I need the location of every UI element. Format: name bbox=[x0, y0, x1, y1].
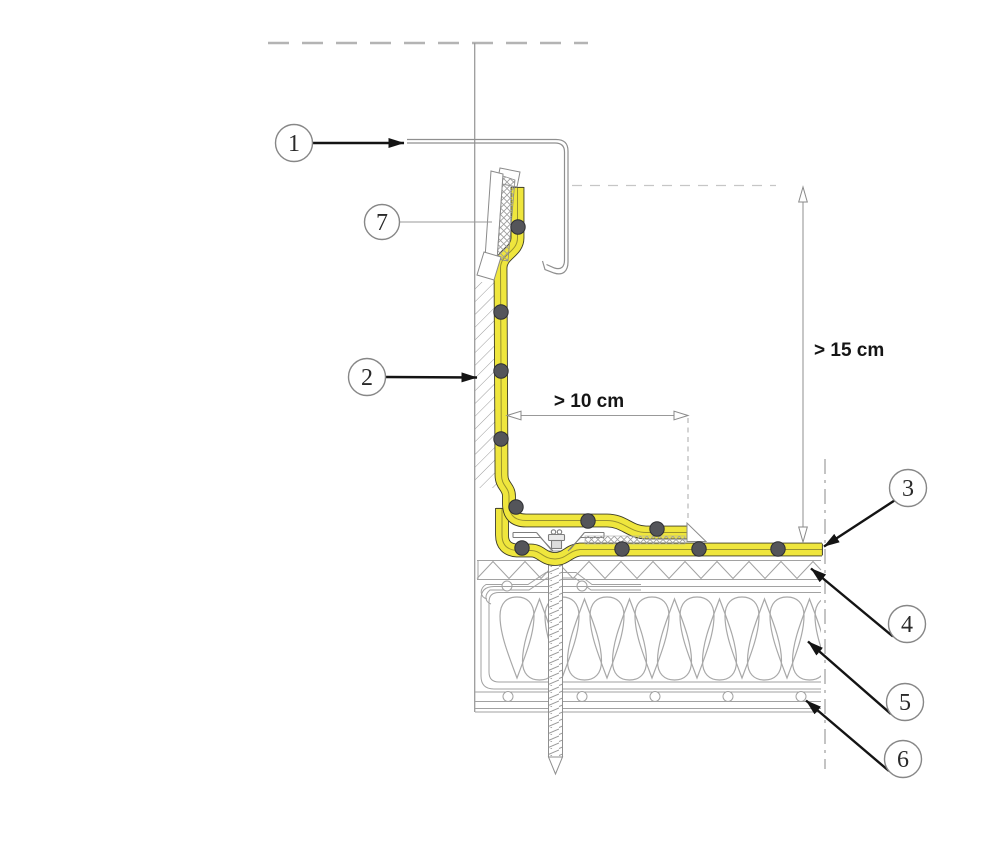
screw-tip bbox=[549, 757, 563, 774]
screw-head bbox=[549, 535, 565, 541]
deck-perforation bbox=[796, 692, 806, 702]
deck-perforation bbox=[503, 692, 513, 702]
callout-3-leader bbox=[824, 501, 895, 547]
dimension-arrow-right bbox=[674, 411, 688, 420]
callout-4-number: 4 bbox=[901, 612, 913, 638]
fastener-dot bbox=[771, 542, 785, 556]
screw-shaft bbox=[549, 551, 563, 757]
fastener-dot bbox=[511, 220, 525, 234]
fastener-dot bbox=[650, 522, 664, 536]
callout-1-number: 1 bbox=[288, 131, 300, 157]
dimension-text-vertical: > 15 cm bbox=[814, 340, 884, 361]
separation-layer bbox=[477, 561, 821, 580]
callout-3: 3 bbox=[824, 470, 927, 547]
membrane-fasteners bbox=[494, 220, 785, 556]
closure-wedge bbox=[687, 523, 706, 542]
callout-7-number: 7 bbox=[376, 210, 388, 236]
construction-detail-drawing: > 15 cm > 10 cm 1 2 7 3 bbox=[0, 0, 1000, 851]
fastener-dot bbox=[509, 500, 523, 514]
horizontal-overlap-dimension: > 10 cm bbox=[507, 391, 688, 520]
callout-5-number: 5 bbox=[899, 690, 911, 716]
callout-1: 1 bbox=[276, 125, 405, 162]
fixing-screw bbox=[549, 551, 563, 774]
fastener-dot bbox=[615, 542, 629, 556]
callout-3-number: 3 bbox=[902, 476, 914, 502]
insulation-frame bbox=[481, 587, 821, 690]
deck-perforation bbox=[650, 692, 660, 702]
callout-6-number: 6 bbox=[897, 747, 909, 773]
fastener-dot bbox=[494, 305, 508, 319]
fastener-dot bbox=[494, 432, 508, 446]
dimension-arrow-up bbox=[799, 187, 808, 202]
deck-perforation bbox=[577, 692, 587, 702]
callout-2: 2 bbox=[349, 359, 478, 396]
callout-5-leader bbox=[808, 642, 891, 715]
screw-drive bbox=[551, 530, 555, 534]
dimension-arrow-left bbox=[507, 411, 521, 420]
wall-membrane-outline bbox=[501, 187, 688, 533]
callout-6-leader bbox=[806, 701, 889, 772]
screw-drive bbox=[557, 530, 561, 534]
screw-head-shank bbox=[552, 541, 562, 549]
fastener-dot bbox=[515, 541, 529, 555]
construction-detail-page: > 15 cm > 10 cm 1 2 7 3 bbox=[0, 0, 1000, 851]
fastener-dot bbox=[494, 364, 508, 378]
dimensions: > 15 cm > 10 cm bbox=[507, 187, 884, 542]
separation-layer-zigzag bbox=[477, 562, 821, 579]
fastener-dot bbox=[692, 542, 706, 556]
deck-bottom-sheet bbox=[475, 692, 821, 713]
callout-2-number: 2 bbox=[361, 365, 373, 391]
wall-membrane-body bbox=[501, 187, 688, 533]
dimension-arrow-down bbox=[799, 527, 808, 542]
dimension-text-horizontal: > 10 cm bbox=[554, 391, 624, 412]
seam-adhesive-hatch bbox=[585, 536, 685, 544]
reference-lines bbox=[268, 43, 825, 769]
roof-deck bbox=[475, 561, 872, 713]
wall-membrane-fold-line bbox=[501, 187, 688, 533]
callouts: 1 2 7 3 4 5 6 bbox=[276, 125, 927, 778]
callout-2-leader bbox=[386, 377, 478, 378]
vertical-upstand-dimension: > 15 cm bbox=[799, 187, 885, 542]
deck-perforation bbox=[723, 692, 733, 702]
callout-4-leader bbox=[811, 569, 893, 637]
callout-7: 7 bbox=[365, 205, 493, 240]
callout-4: 4 bbox=[811, 569, 926, 643]
fastener-dot bbox=[581, 514, 595, 528]
wall-membrane bbox=[501, 187, 688, 533]
